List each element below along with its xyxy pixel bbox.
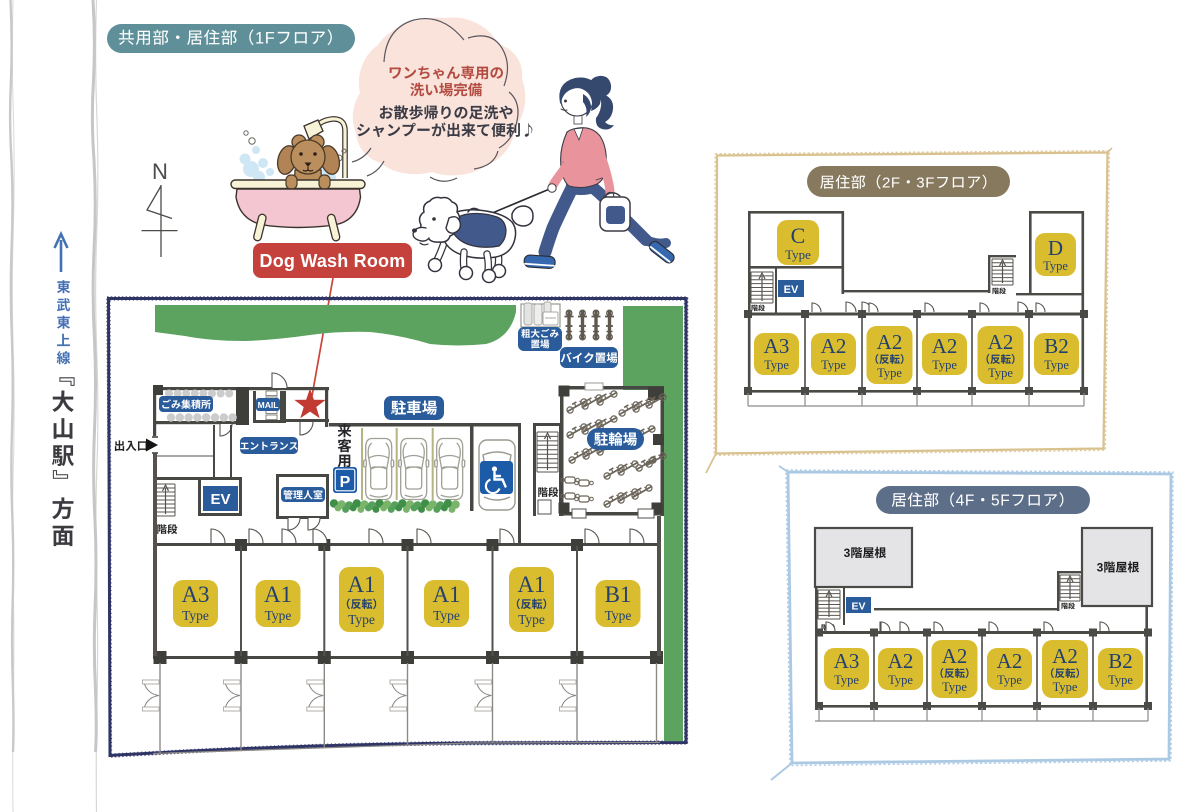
svg-text:A1: A1 — [517, 572, 545, 597]
svg-text:A2: A2 — [988, 330, 1014, 354]
svg-text:P: P — [340, 474, 351, 491]
svg-text:MAIL: MAIL — [258, 400, 279, 410]
svg-text:3階屋根: 3階屋根 — [1097, 559, 1140, 576]
svg-text:Type: Type — [182, 608, 209, 623]
svg-text:バイク置場: バイク置場 — [560, 350, 618, 366]
svg-text:（反転）: （反転） — [1044, 666, 1086, 681]
svg-text:N: N — [152, 159, 168, 184]
svg-text:EV: EV — [210, 491, 230, 508]
svg-text:Type: Type — [265, 608, 292, 623]
svg-text:C: C — [791, 223, 806, 248]
svg-text:D: D — [1048, 236, 1063, 260]
svg-text:A2: A2 — [942, 644, 968, 668]
svg-text:共用部・居住部（1Fフロア）: 共用部・居住部（1Fフロア） — [118, 25, 344, 49]
svg-text:駐輪場: 駐輪場 — [594, 429, 638, 450]
svg-text:A1: A1 — [432, 582, 460, 607]
svg-text:Type: Type — [433, 608, 460, 623]
svg-text:Type: Type — [1044, 358, 1069, 372]
svg-text:Type: Type — [1108, 673, 1133, 687]
svg-text:EV: EV — [851, 601, 865, 613]
svg-text:Type: Type — [932, 358, 957, 372]
svg-text:駅: 駅 — [52, 437, 75, 471]
svg-text:Type: Type — [888, 673, 913, 687]
svg-text:洗い場完備: 洗い場完備 — [410, 79, 483, 100]
svg-text:Type: Type — [518, 612, 545, 627]
svg-text:EV: EV — [784, 284, 799, 296]
svg-text:A2: A2 — [877, 330, 903, 354]
svg-text:A3: A3 — [181, 582, 209, 607]
svg-text:（反転）: （反転） — [510, 596, 554, 612]
svg-text:A2: A2 — [821, 334, 847, 358]
svg-text:階段: 階段 — [751, 304, 765, 314]
svg-text:シャンプーが出来て便利♪: シャンプーが出来て便利♪ — [356, 120, 536, 141]
svg-text:面: 面 — [52, 517, 75, 551]
svg-text:ごみ集積所: ごみ集積所 — [161, 396, 211, 411]
svg-text:Type: Type — [348, 612, 375, 627]
svg-text:B1: B1 — [605, 582, 632, 607]
svg-text:Type: Type — [821, 358, 846, 372]
svg-text:Type: Type — [942, 680, 967, 694]
svg-text:置場: 置場 — [530, 337, 550, 351]
svg-text:Type: Type — [1053, 680, 1078, 694]
svg-text:Type: Type — [997, 673, 1022, 687]
svg-text:階段: 階段 — [992, 287, 1006, 297]
svg-text:Type: Type — [764, 358, 789, 372]
svg-text:A1: A1 — [347, 572, 375, 597]
svg-text:居住部（2F・3Fフロア）: 居住部（2F・3Fフロア） — [820, 172, 998, 193]
svg-text:A1: A1 — [264, 582, 292, 607]
svg-text:階段: 階段 — [1061, 602, 1075, 612]
svg-text:B2: B2 — [1108, 649, 1133, 673]
svg-text:A3: A3 — [834, 649, 860, 673]
svg-text:A3: A3 — [764, 334, 790, 358]
svg-text:階段: 階段 — [538, 485, 559, 500]
svg-text:3階屋根: 3階屋根 — [844, 544, 887, 561]
svg-text:A2: A2 — [1052, 644, 1078, 668]
svg-text:（反転）: （反転） — [340, 596, 384, 612]
svg-text:A2: A2 — [932, 334, 958, 358]
svg-text:A2: A2 — [997, 649, 1023, 673]
svg-text:（反転）: （反転） — [869, 352, 911, 367]
svg-text:Dog Wash Room: Dog Wash Room — [260, 251, 406, 271]
svg-text:Type: Type — [834, 673, 859, 687]
svg-text:A2: A2 — [888, 649, 914, 673]
svg-text:エントランス: エントランス — [240, 439, 299, 453]
svg-text:B2: B2 — [1044, 334, 1069, 358]
svg-text:階段: 階段 — [157, 522, 178, 537]
svg-text:出入口: 出入口 — [114, 438, 149, 454]
svg-text:Type: Type — [1043, 259, 1068, 273]
svg-text:Type: Type — [605, 608, 632, 623]
svg-text:Type: Type — [988, 366, 1013, 380]
svg-text:Type: Type — [785, 247, 811, 262]
svg-text:Type: Type — [877, 366, 902, 380]
svg-text:（反転）: （反転） — [980, 352, 1022, 367]
svg-text:管理人室: 管理人室 — [283, 487, 323, 502]
svg-text:居住部（4F・5Fフロア）: 居住部（4F・5Fフロア） — [891, 489, 1074, 511]
svg-text:（反転）: （反転） — [934, 666, 976, 681]
svg-text:駐車場: 駐車場 — [391, 397, 438, 419]
